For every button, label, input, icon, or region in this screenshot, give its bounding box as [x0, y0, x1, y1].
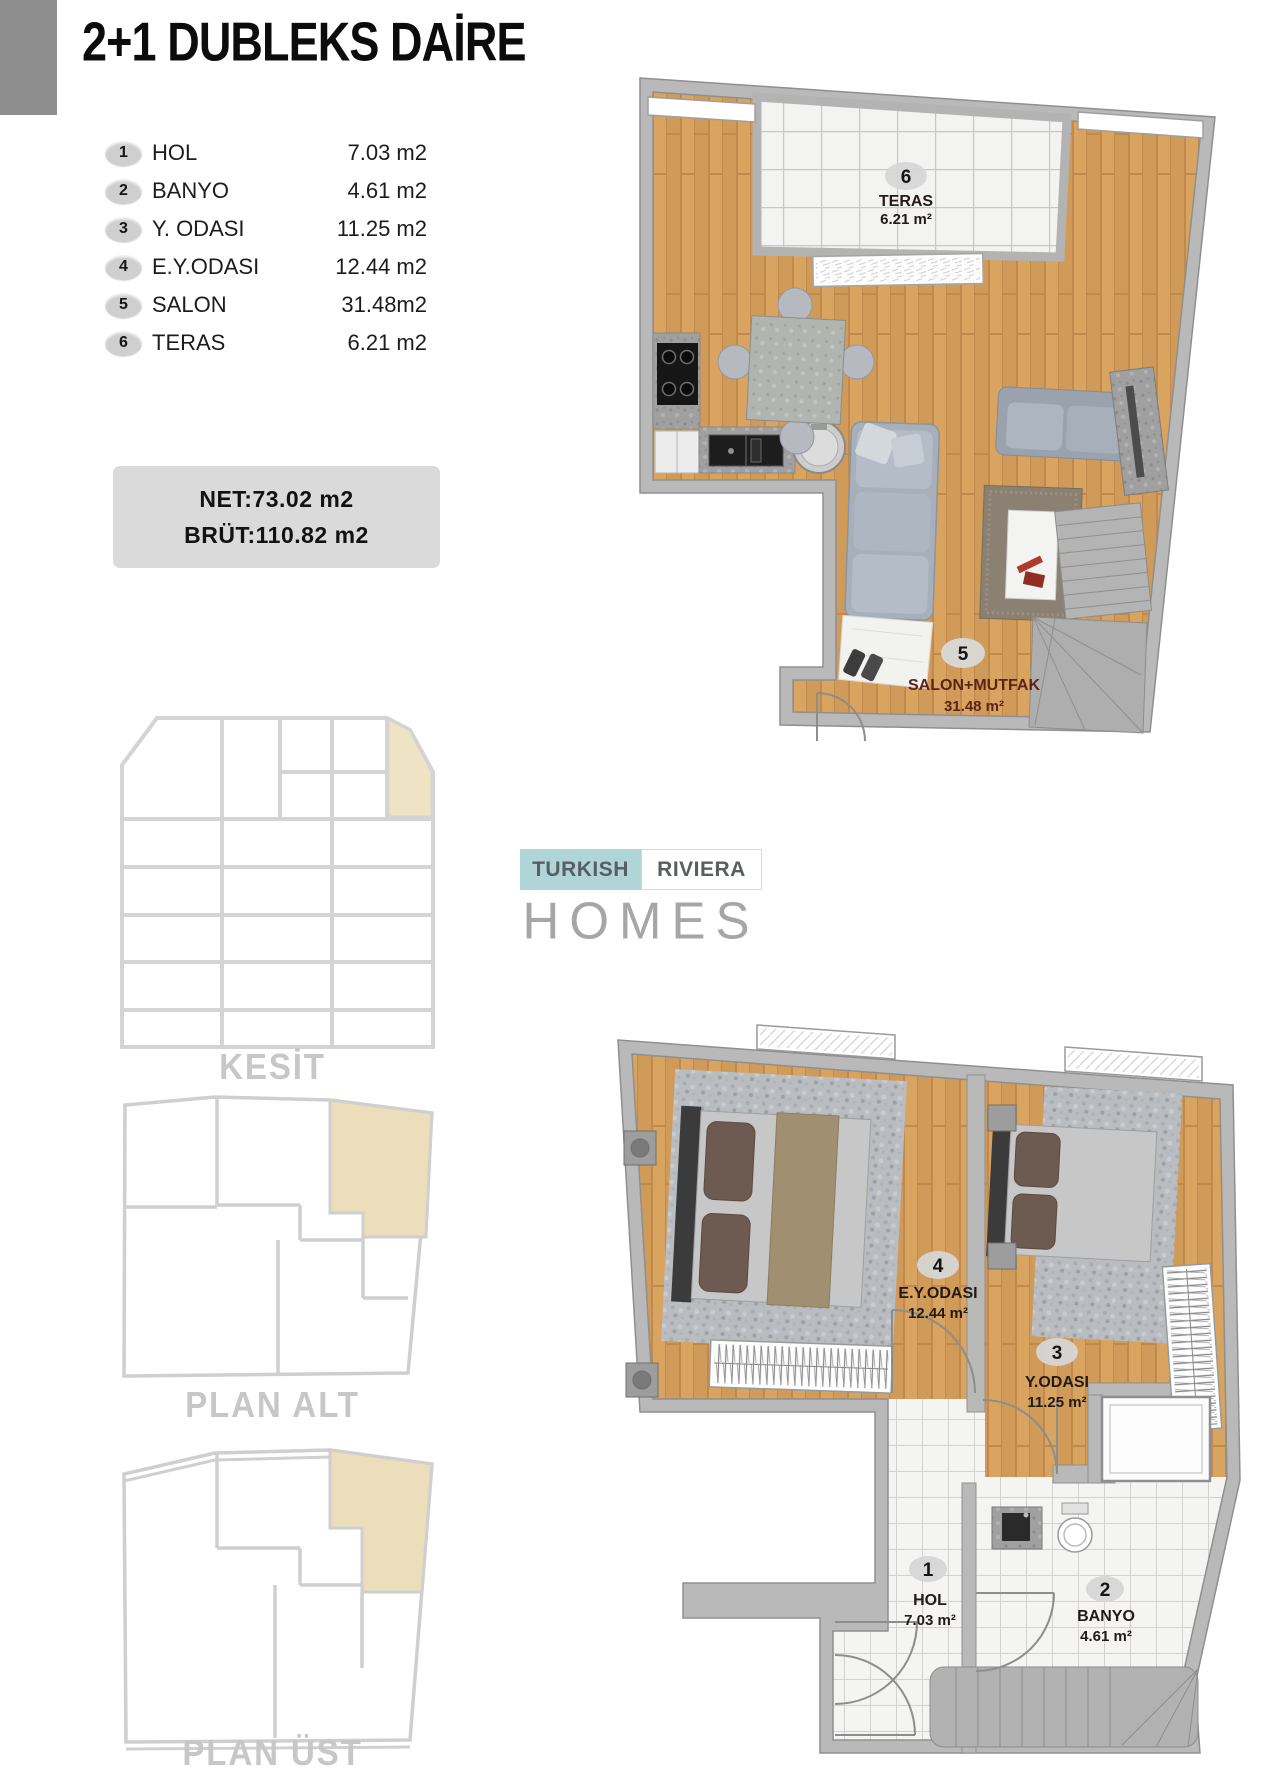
svg-text:31.48 m²: 31.48 m² [944, 698, 1004, 715]
svg-text:2: 2 [1100, 1580, 1111, 1601]
svg-text:5: 5 [958, 644, 969, 665]
plan-alt-label: PLAN ALT [114, 1384, 431, 1426]
legend-row-banyo: 2 BANYO 4.61 m2 [105, 172, 427, 210]
legend-number-badge: 1 [105, 141, 142, 166]
svg-text:6.21 m²: 6.21 m² [880, 211, 932, 228]
kesit-label: KESİT [114, 1046, 431, 1088]
double-bed [671, 1106, 871, 1312]
corner-sofa [838, 421, 939, 688]
svg-text:6: 6 [901, 167, 912, 188]
legend-room-label: E.Y.ODASI [152, 254, 259, 280]
svg-text:E.Y.ODASI: E.Y.ODASI [898, 1285, 977, 1302]
room-legend: 1 HOL 7.03 m2 2 BANYO 4.61 m2 3 Y. ODASI… [105, 134, 427, 362]
net-area-value: NET:73.02 m2 [199, 486, 353, 513]
legend-room-label: SALON [152, 292, 227, 318]
kitchen-sink-icon [709, 435, 783, 466]
svg-text:Y.ODASI: Y.ODASI [1025, 1374, 1089, 1391]
wardrobe-bedroom4 [709, 1340, 893, 1393]
legend-room-area: 4.61 m2 [348, 178, 428, 204]
sink-icon [992, 1507, 1042, 1549]
svg-text:TERAS: TERAS [879, 193, 934, 210]
svg-text:12.44 m²: 12.44 m² [908, 1305, 968, 1322]
plan-alt-diagram [100, 1085, 445, 1385]
legend-number-badge: 3 [105, 217, 142, 242]
kesit-highlight-unit [388, 719, 432, 817]
svg-text:4.61 m²: 4.61 m² [1080, 1628, 1132, 1645]
svg-text:3: 3 [1052, 1343, 1063, 1364]
plan-ust-label: PLAN ÜST [114, 1732, 431, 1774]
svg-text:HOL: HOL [913, 1592, 947, 1609]
svg-text:BANYO: BANYO [1077, 1608, 1135, 1625]
corner-decoration [0, 0, 57, 115]
legend-row-teras: 6 TERAS 6.21 m2 [105, 324, 427, 362]
watermark-word-riviera: RIVIERA [641, 849, 762, 890]
toilet-icon [1058, 1503, 1092, 1552]
plan-ust-diagram [100, 1440, 445, 1758]
legend-room-area: 12.44 m2 [335, 254, 427, 280]
dining-chair [780, 420, 814, 454]
dining-chair [718, 345, 752, 379]
brut-area-value: BRÜT:110.82 m2 [184, 522, 369, 549]
agency-watermark-top: TURKISH RIVIERA [520, 849, 762, 890]
coffee-table [1005, 510, 1058, 600]
legend-room-area: 11.25 m2 [337, 216, 427, 242]
svg-text:7.03 m²: 7.03 m² [904, 1612, 956, 1629]
terrace-label: 6 TERAS 6.21 m² [879, 162, 934, 228]
legend-number-badge: 4 [105, 255, 142, 280]
upper-floor-plan: 6 TERAS 6.21 m² 5 SALON+MUTFAK 31.48 m² [555, 55, 1235, 745]
legend-number-badge: 2 [105, 179, 142, 204]
lower-floor-plan: 4 E.Y.ODASI 12.44 m² 3 Y.ODASI 11.25 m² … [610, 925, 1250, 1773]
legend-room-area: 31.48m2 [341, 292, 427, 318]
legend-row-yodasi: 3 Y. ODASI 11.25 m2 [105, 210, 427, 248]
svg-text:SALON+MUTFAK: SALON+MUTFAK [908, 677, 1040, 694]
svg-text:11.25 m²: 11.25 m² [1027, 1394, 1086, 1411]
terrace-railing [813, 254, 983, 287]
legend-room-label: HOL [152, 140, 197, 166]
stove-icon [657, 343, 698, 405]
svg-text:1: 1 [923, 1560, 934, 1581]
legend-room-area: 7.03 m2 [348, 140, 428, 166]
kesit-section-diagram [100, 620, 445, 1060]
dining-chair [840, 345, 874, 379]
shower-icon [1102, 1397, 1210, 1481]
legend-room-label: TERAS [152, 330, 225, 356]
legend-room-label: BANYO [152, 178, 229, 204]
legend-row-hol: 1 HOL 7.03 m2 [105, 134, 427, 172]
legend-number-badge: 5 [105, 293, 142, 318]
legend-room-label: Y. ODASI [152, 216, 245, 242]
watermark-word-turkish: TURKISH [520, 849, 641, 890]
page-title: 2+1 DUBLEKS DAİRE [82, 10, 526, 74]
dining-table [746, 316, 845, 425]
area-summary-box: NET:73.02 m2 BRÜT:110.82 m2 [113, 466, 440, 568]
stairs [930, 1667, 1198, 1747]
legend-row-eyodasi: 4 E.Y.ODASI 12.44 m2 [105, 248, 427, 286]
legend-room-area: 6.21 m2 [348, 330, 428, 356]
svg-text:4: 4 [933, 1256, 944, 1277]
legend-row-salon: 5 SALON 31.48m2 [105, 286, 427, 324]
legend-number-badge: 6 [105, 331, 142, 356]
